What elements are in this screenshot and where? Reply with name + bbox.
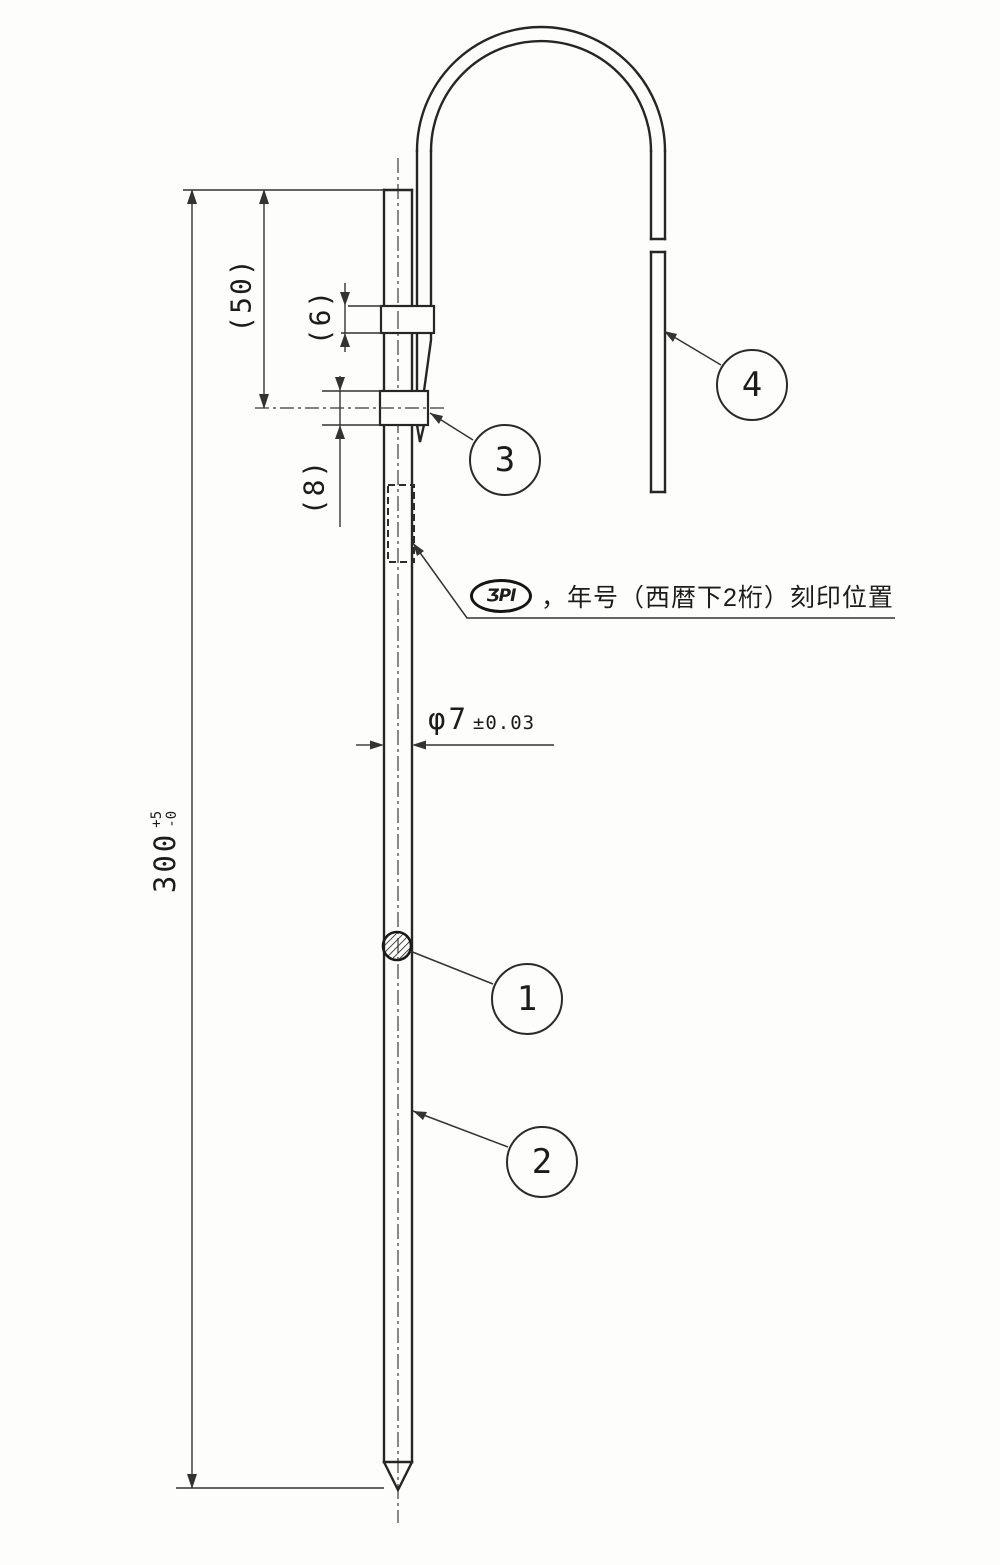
balloon-1: 1	[491, 963, 563, 1035]
maker-logo: ƷPI	[470, 579, 532, 613]
dimension-lines	[176, 190, 554, 1488]
stamp-note: ƷPI ，年号（西暦下2桁）刻印位置	[470, 578, 894, 614]
dim-diameter-label: φ7 ±0.03	[428, 702, 535, 736]
dim-diameter-value: φ7	[428, 702, 469, 736]
balloon-4: 4	[716, 349, 788, 421]
collars	[380, 306, 434, 425]
dim-lower-collar-label: (8)	[298, 459, 331, 516]
dimension-arrowheads	[187, 189, 426, 1489]
dim-overall-value: 300	[148, 832, 182, 893]
dim-diameter-tolerance: ±0.03	[473, 712, 535, 734]
balloon-2: 2	[506, 1126, 578, 1198]
dim-overall-length-label: 300 +5 -0	[148, 811, 182, 893]
dim-upper-section-label: (50)	[225, 257, 258, 332]
dim-overall-tol-lower: -0	[165, 811, 180, 828]
drawing-canvas: (50) (6) (8) 300 +5 -0 φ7 ±0.03 ƷPI ，年号（…	[0, 0, 1000, 1565]
balloon-3: 3	[469, 424, 541, 496]
dim-overall-tol-upper: +5	[150, 811, 165, 828]
dim-overall-tolerance: +5 -0	[150, 811, 181, 828]
hook-wire	[417, 27, 665, 492]
stamp-area-box	[388, 485, 414, 562]
ball-part	[383, 932, 411, 960]
stamp-note-text: ，年号（西暦下2桁）刻印位置	[541, 578, 894, 614]
drawing-lineart	[0, 0, 1000, 1565]
dim-upper-collar-label: (6)	[304, 289, 337, 346]
